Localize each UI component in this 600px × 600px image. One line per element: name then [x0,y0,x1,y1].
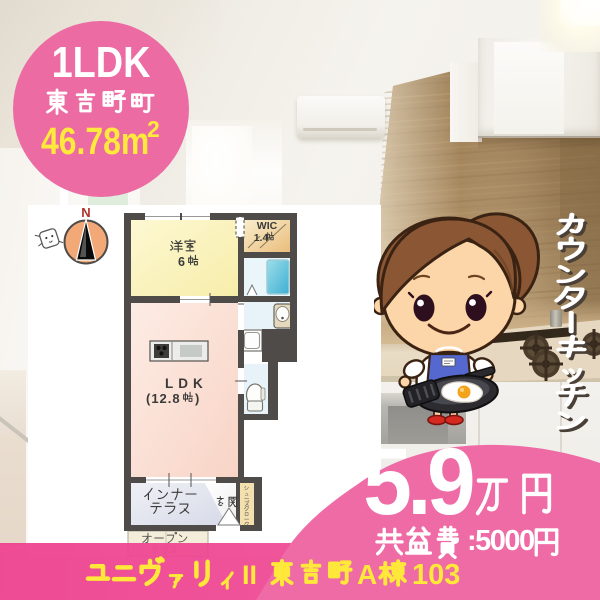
svg-text:5.9: 5.9 [363,429,473,535]
svg-text:A: A [357,559,377,590]
svg-text:2: 2 [147,116,160,142]
svg-text:46.78m: 46.78m [41,120,149,162]
svg-text:II: II [242,560,257,590]
svg-text:103: 103 [412,559,460,591]
svg-text:): ) [195,391,199,406]
svg-text:1LDK: 1LDK [52,37,151,86]
svg-text:LDK: LDK [165,376,208,391]
svg-text:6: 6 [178,255,185,269]
svg-text:(12.8: (12.8 [146,391,181,406]
svg-text:WIC: WIC [257,220,278,232]
